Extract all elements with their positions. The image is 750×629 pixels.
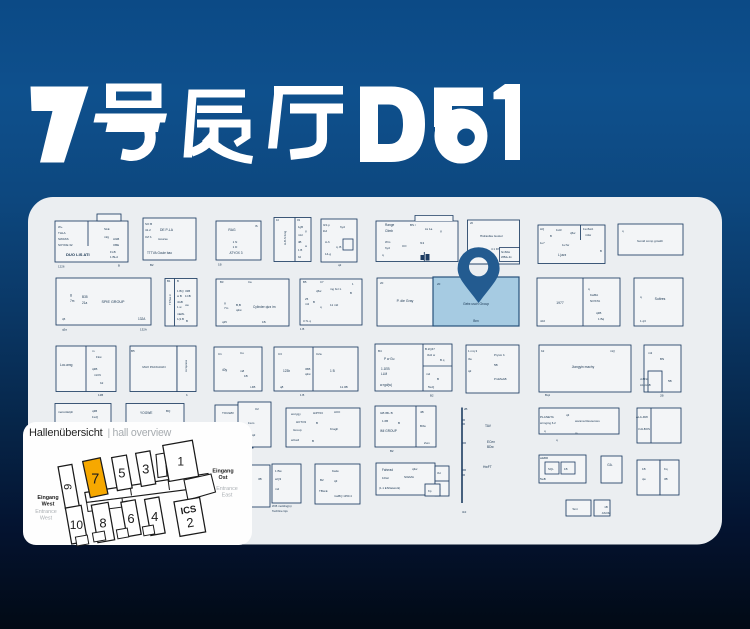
svg-text:Sultres: Sultres — [655, 297, 666, 301]
svg-text:4GB: 4GB — [177, 300, 183, 304]
svg-text:7m: 7m — [224, 306, 229, 310]
svg-text:hyd: hyd — [340, 225, 345, 229]
svg-text:Range: Range — [385, 223, 395, 227]
svg-text:1 Bw: 1 Bw — [275, 469, 282, 473]
svg-text:7: 7 — [91, 471, 99, 487]
svg-text:1w 8wA: 1w 8wA — [583, 227, 593, 231]
svg-text:1: 1 — [177, 455, 184, 469]
svg-text:1u7w: 1u7w — [562, 243, 570, 247]
svg-text:2B: 2B — [660, 394, 664, 398]
svg-text:B: B — [316, 421, 318, 425]
svg-text:THLA: THLA — [58, 231, 66, 235]
svg-text:ibd: ibd — [323, 229, 327, 233]
svg-text:q3w: q3w — [412, 467, 418, 471]
svg-text:B3: B3 — [220, 280, 224, 284]
svg-text:132A: 132A — [138, 317, 146, 321]
svg-text:TBw.E: TBw.E — [319, 489, 328, 493]
svg-text:12B: 12B — [98, 393, 103, 397]
svg-text:1B: 1B — [642, 467, 646, 471]
svg-text:mld: mld — [298, 233, 303, 237]
svg-text:Hidravlka Gostol: Hidravlka Gostol — [480, 234, 503, 238]
svg-text:1 BLd: 1 BLd — [110, 255, 118, 259]
svg-text:mfg: mfg — [104, 235, 109, 239]
svg-text:Techline Gjs: Techline Gjs — [272, 509, 288, 513]
svg-text:NOSTA: NOSTA — [590, 299, 600, 303]
svg-text:1 mq 3: 1 mq 3 — [468, 349, 477, 353]
svg-text:Wm: Wm — [385, 240, 391, 244]
svg-text:123b: 123b — [283, 369, 290, 373]
svg-text:Eingang: Eingang — [37, 495, 58, 501]
svg-text:merordelph: merordelph — [58, 410, 73, 414]
svg-text:10: 10 — [70, 518, 84, 532]
svg-text:B: B — [313, 300, 315, 304]
svg-text:q5w: q5w — [570, 231, 576, 235]
svg-text:Entrance: Entrance — [35, 509, 57, 515]
svg-text:AzgmbB: AzgmbB — [640, 383, 651, 387]
svg-text:5: 5 — [118, 465, 125, 480]
svg-text:mwBQ 1350.4: mwBQ 1350.4 — [334, 494, 352, 498]
svg-text:B: B — [118, 264, 120, 268]
svg-text:20: 20 — [470, 221, 473, 225]
svg-text:BQ: BQ — [166, 409, 171, 413]
svg-text:DE P-LA: DE P-LA — [160, 228, 174, 232]
svg-text:GS p: GS p — [323, 223, 330, 227]
svg-text:wanma Resources: wanma Resources — [575, 419, 600, 423]
svg-text:KwBA: KwBA — [590, 293, 598, 297]
svg-text:Fkw: Fkw — [96, 355, 102, 359]
svg-text:B2: B2 — [390, 449, 394, 453]
svg-text:20: 20 — [380, 281, 384, 285]
svg-text:PLANETA: PLANETA — [540, 415, 555, 419]
svg-text:Kragh: Kragh — [330, 427, 339, 431]
svg-text:mg bvl 1.: mg bvl 1. — [330, 287, 342, 291]
svg-text:(1.1 ESNetwork): (1.1 ESNetwork) — [379, 486, 400, 490]
svg-text:compress: compress — [184, 359, 188, 372]
svg-text:3rd: 3rd — [462, 510, 467, 514]
svg-text:IS: IS — [255, 224, 258, 228]
svg-text:LLM: LLM — [381, 372, 388, 376]
svg-text:5B: 5B — [668, 379, 672, 383]
svg-text:03: 03 — [297, 218, 300, 222]
svg-text:BDw: BDw — [487, 445, 494, 449]
svg-text:1(2.B: 1(2.B — [177, 317, 184, 321]
svg-text:P. die Gray: P. die Gray — [397, 299, 414, 303]
svg-text:BN: BN — [660, 357, 664, 361]
svg-text:W.B molding(s): W.B molding(s) — [272, 504, 292, 508]
svg-text:C7: C7 — [320, 280, 324, 284]
svg-text:1 B: 1 B — [298, 248, 302, 252]
svg-text:wCwd: wCwd — [291, 438, 299, 442]
svg-text:MAX PACKAGIN: MAX PACKAGIN — [142, 365, 165, 369]
svg-text:q .B: q .B — [336, 245, 341, 249]
svg-text:g: g — [224, 301, 226, 305]
svg-text:B3w: B3w — [420, 424, 427, 428]
svg-text:14-g: 14-g — [325, 252, 331, 256]
svg-text:1Dwr: 1Dwr — [382, 476, 389, 480]
svg-text:YOGWE: YOGWE — [140, 411, 153, 415]
svg-text:m3: m3 — [648, 351, 652, 355]
svg-text:m2: m2 — [275, 487, 279, 491]
svg-text:q8: q8 — [280, 385, 284, 389]
svg-text:d-BNq: d-BNq — [640, 377, 649, 381]
svg-text:Kq: Kq — [664, 467, 668, 471]
svg-text:C2: C2 — [255, 407, 259, 411]
svg-text:Kp: Kp — [428, 489, 432, 493]
svg-text:3 ALBOS: 3 ALBOS — [638, 427, 650, 431]
svg-text:ECen: ECen — [487, 440, 495, 444]
svg-text:b2: b2 — [100, 381, 104, 385]
svg-text:1977: 1977 — [556, 301, 564, 305]
svg-text:t.4B: t.4B — [250, 385, 255, 389]
svg-text:3HJ w: 3HJ w — [427, 353, 436, 357]
svg-text:C2a: C2a — [316, 352, 322, 356]
svg-text:Cylinder qizz im: Cylinder qizz im — [253, 305, 276, 309]
svg-text:b2: b2 — [298, 255, 302, 259]
svg-text:L jazz: L jazz — [558, 253, 567, 257]
svg-text:ATYOX 3: ATYOX 3 — [229, 251, 242, 255]
svg-text:1.6B: 1.6B — [382, 419, 388, 423]
svg-text:q3B: q3B — [596, 311, 601, 315]
svg-text:1gB: 1gB — [298, 225, 303, 229]
svg-text:m2: m2 — [426, 372, 430, 376]
svg-text:1 BQ: 1 BQ — [177, 289, 184, 293]
svg-text:11 m0: 11 m0 — [330, 303, 338, 307]
svg-text:q3: q3 — [334, 479, 338, 483]
svg-text:1CB: 1CB — [185, 294, 191, 298]
svg-text:36B: 36B — [305, 367, 310, 371]
svg-text:B5: B5 — [131, 349, 135, 353]
svg-text:1.1EB: 1.1EB — [381, 367, 390, 371]
svg-text:q5: q5 — [62, 317, 66, 321]
svg-text:SIGMA: SIGMA — [404, 475, 415, 479]
svg-text:1 q3: 1 q3 — [640, 319, 646, 323]
svg-text:41.2: 41.2 — [145, 228, 151, 232]
svg-text:Hallenübersicht: Hallenübersicht — [29, 427, 103, 439]
svg-text:32B: 32B — [185, 289, 190, 293]
svg-text:w B: w B — [177, 294, 182, 298]
svg-text:hm60w: hm60w — [501, 250, 511, 254]
svg-text:m3w: m3w — [585, 233, 592, 237]
svg-text:q3B: q3B — [92, 367, 97, 371]
svg-text:q2: q2 — [468, 369, 472, 373]
svg-text:m3: m3 — [305, 302, 309, 306]
svg-text:1wQ: 1wQ — [92, 415, 99, 419]
svg-text:Group: Group — [293, 428, 302, 432]
svg-text:|: | — [108, 428, 111, 439]
svg-text:4B: 4B — [420, 410, 424, 414]
svg-text:B5: B5 — [303, 280, 307, 284]
svg-text:ASOM: ASOM — [602, 511, 611, 515]
svg-text:Gebr.usch Group: Gebr.usch Group — [463, 302, 489, 306]
svg-text:21a: 21a — [82, 301, 88, 305]
svg-text:1 B: 1 B — [300, 393, 304, 397]
svg-text:B4: B4 — [378, 349, 382, 353]
svg-text:West: West — [42, 502, 55, 508]
svg-text:3B: 3B — [258, 477, 262, 481]
svg-text:CZ b: CZ b — [145, 235, 152, 239]
svg-text:Jiangyin machy: Jiangyin machy — [572, 365, 595, 369]
svg-text:1B: 1B — [564, 467, 568, 471]
svg-text:1B: 1B — [244, 374, 248, 378]
svg-text:2B: 2B — [464, 407, 468, 411]
svg-text:1H3: 1H3 — [556, 228, 562, 232]
svg-text:SQL: SQL — [548, 467, 554, 471]
svg-text:1B.: 1B. — [262, 320, 267, 324]
svg-text:B q: B q — [440, 358, 445, 362]
svg-text:5B: 5B — [494, 363, 498, 367]
svg-text:TCSw.3: TCSw.3 — [168, 294, 172, 305]
svg-text:Fahrrad: Fahrrad — [382, 468, 393, 472]
svg-text:6: 6 — [127, 511, 134, 526]
svg-text:1 N: 1 N — [233, 240, 238, 244]
svg-text:m8: m8 — [240, 369, 244, 373]
svg-text:Bnn: Bnn — [473, 319, 479, 323]
svg-text:ALA-RW: ALA-RW — [636, 415, 648, 419]
svg-text:3B: 3B — [664, 477, 668, 481]
svg-text:q2w: q2w — [236, 308, 242, 312]
svg-text:B: B — [177, 279, 179, 283]
svg-text:GA.: GA. — [607, 463, 613, 467]
svg-text:A-h: A-h — [325, 240, 330, 244]
svg-text:Prysm b: Prysm b — [494, 353, 505, 357]
svg-text:Eingang: Eingang — [212, 469, 233, 475]
svg-text:HCTO3: HCTO3 — [296, 420, 306, 424]
svg-text:b2: b2 — [541, 349, 545, 353]
svg-text:wEBR: wEBR — [540, 456, 548, 460]
svg-text:B: B — [350, 291, 352, 295]
svg-text:1 B: 1 B — [300, 327, 304, 331]
svg-text:TTTVA Goule bao: TTTVA Goule bao — [147, 251, 172, 255]
svg-text:Zum: Zum — [424, 441, 430, 445]
svg-text:q3B: q3B — [92, 409, 97, 413]
svg-text:1 Bq: 1 Bq — [598, 317, 604, 321]
svg-text:1B: 1B — [604, 505, 608, 509]
svg-text:mE8L: mE8L — [177, 312, 185, 316]
svg-text:C3: C3 — [278, 352, 282, 356]
svg-text:TOGWR: TOGWR — [222, 411, 235, 415]
svg-text:1226: 1226 — [58, 265, 65, 269]
svg-text:4: 4 — [151, 509, 158, 524]
svg-text:40y: 40y — [222, 368, 228, 372]
svg-text:IMI GROUP: IMI GROUP — [380, 429, 397, 433]
svg-text:4B: 4B — [298, 240, 302, 244]
svg-text:SLE: SLE — [104, 227, 110, 231]
svg-text:SOYDE 32: SOYDE 32 — [58, 243, 73, 247]
svg-text:DUO LIS ATI: DUO LIS ATI — [66, 252, 90, 257]
svg-text:C1: C1 — [218, 352, 222, 356]
svg-text:P w Gu: P w Gu — [384, 357, 395, 361]
svg-text:Ost: Ost — [219, 475, 228, 481]
svg-text:g: g — [70, 293, 72, 297]
svg-text:RAG: RAG — [228, 228, 236, 232]
svg-text:SPIE GROUP: SPIE GROUP — [102, 300, 125, 304]
svg-text:1 B: 1 B — [330, 369, 335, 373]
svg-text:tcourse: tcourse — [158, 237, 168, 241]
svg-text:q25: q25 — [222, 320, 227, 324]
svg-text:B2: B2 — [320, 478, 324, 482]
svg-text:10: 10 — [276, 218, 279, 222]
svg-text:mQ: mQ — [610, 349, 615, 353]
svg-text:TAV: TAV — [485, 424, 492, 428]
svg-text:q5a: q5a — [62, 328, 67, 332]
svg-text:B: B — [600, 249, 602, 253]
svg-text:wQ3: wQ3 — [275, 477, 281, 481]
svg-text:11.0B: 11.0B — [340, 385, 348, 389]
svg-text:B2: B2 — [150, 263, 154, 267]
svg-text:Kalw: Kalw — [332, 469, 339, 473]
svg-text:f13: f13 — [420, 241, 424, 245]
svg-text:q5w: q5w — [316, 289, 322, 293]
svg-text:B: B — [550, 234, 552, 238]
svg-text:AGB: AGB — [113, 237, 119, 241]
svg-text:Bq1: Bq1 — [545, 393, 551, 397]
svg-text:5wB: 5wB — [540, 477, 546, 481]
svg-text:w.rgd(w): w.rgd(w) — [380, 383, 392, 387]
svg-text:B1: B1 — [167, 279, 171, 283]
svg-text:ACC: ACC — [334, 410, 341, 414]
svg-text:4 1 Df: 4 1 Df — [491, 247, 499, 251]
svg-text:Lk 1a: Lk 1a — [425, 227, 433, 231]
svg-text:7m: 7m — [70, 299, 75, 303]
svg-text:BS r: BS r — [410, 223, 416, 227]
svg-text:W+: W+ — [58, 225, 63, 229]
svg-text:1wm: 1wm — [248, 421, 255, 425]
svg-text:Cu: Cu — [240, 351, 244, 355]
svg-text:q3: q3 — [566, 413, 570, 417]
svg-text:WB4+3x: WB4+3x — [501, 255, 512, 259]
svg-text:SO B: SO B — [145, 222, 152, 226]
svg-text:9: 9 — [63, 484, 75, 490]
svg-text:3H: 3H — [437, 471, 441, 475]
svg-text:1u7: 1u7 — [540, 241, 545, 245]
svg-text:ProMwAB: ProMwAB — [494, 377, 507, 381]
svg-text:Ft-B: Ft-B — [110, 250, 116, 254]
svg-text:GB IBL B: GB IBL B — [380, 411, 393, 415]
svg-text:B.2Q47: B.2Q47 — [425, 347, 435, 351]
svg-text:mCN: mCN — [94, 373, 101, 377]
svg-text:q2: q2 — [252, 433, 256, 437]
svg-text:East: East — [222, 493, 233, 499]
svg-text:q2: q2 — [338, 263, 342, 267]
svg-text:3.7L q: 3.7L q — [303, 319, 311, 323]
svg-text:n02: n02 — [540, 319, 545, 323]
svg-text:H-B-S bmg: H-B-S bmg — [283, 230, 287, 245]
svg-text:B: B — [186, 319, 188, 323]
svg-text:Ca: Ca — [248, 280, 252, 284]
svg-text:1B: 1B — [218, 263, 222, 267]
svg-text:HiP703: HiP703 — [313, 411, 323, 415]
svg-text:5wQ: 5wQ — [428, 385, 435, 389]
svg-text:B: B — [437, 377, 439, 381]
svg-text:humid comp growth: humid comp growth — [637, 239, 663, 243]
svg-text:worygy: worygy — [291, 412, 301, 416]
svg-text:8: 8 — [99, 516, 106, 531]
svg-text:3: 3 — [142, 461, 149, 476]
svg-text:SWASS: SWASS — [58, 237, 69, 241]
svg-text:B2: B2 — [430, 394, 434, 398]
svg-text:CO: CO — [402, 244, 407, 248]
svg-text:hall overview: hall overview — [113, 427, 172, 439]
svg-text:CBE: CBE — [113, 243, 119, 247]
svg-text:Smi: Smi — [572, 507, 578, 511]
svg-text:hyd: hyd — [385, 246, 390, 250]
svg-text:B: B — [312, 439, 314, 443]
svg-text:B35: B35 — [82, 295, 88, 299]
svg-text:B: B — [398, 421, 400, 425]
svg-text:West: West — [40, 516, 53, 522]
svg-text:B,B: B,B — [236, 303, 241, 307]
svg-text:132A: 132A — [140, 328, 147, 332]
svg-text:HwFT: HwFT — [483, 465, 492, 469]
svg-text:Climb: Climb — [385, 229, 393, 233]
svg-text:25: 25 — [305, 297, 309, 301]
svg-text:wrmging 6.2: wrmging 6.2 — [540, 421, 556, 425]
svg-text:Loc.amg: Loc.amg — [60, 363, 73, 367]
svg-text:q2w: q2w — [305, 372, 311, 376]
svg-text:Entrance: Entrance — [216, 486, 238, 492]
svg-text:20: 20 — [437, 282, 441, 286]
